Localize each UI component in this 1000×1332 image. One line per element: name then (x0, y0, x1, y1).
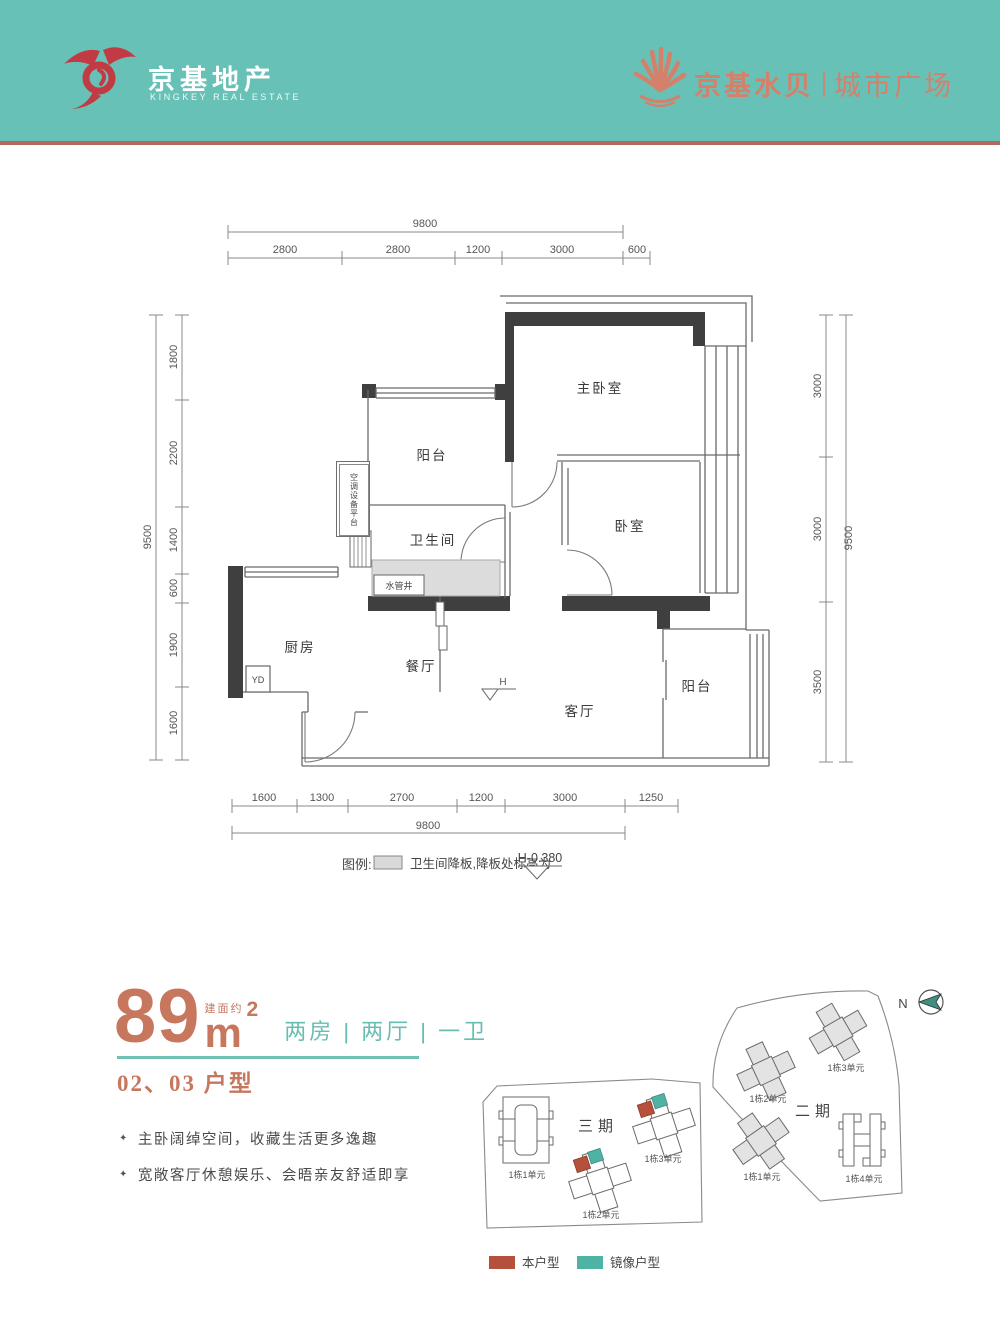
dim-label: 2800 (386, 244, 410, 256)
room-label-balcony-right: 阳台 (682, 679, 713, 694)
feature-text: 主卧阔绰空间，收藏生活更多逸趣 (138, 1128, 378, 1149)
dim-label: 1600 (252, 792, 276, 804)
room-label-dining: 餐厅 (406, 659, 437, 674)
dim-label: 1200 (466, 244, 490, 256)
floor-plan: 9800 2800 2800 1200 3000 600 1600 1300 2… (140, 200, 880, 900)
dim-label: 1600 (168, 711, 180, 735)
phase3-label: 三期 (578, 1118, 618, 1135)
area-unit-block: 建面约 m (205, 1000, 244, 1049)
dim-label: 1900 (168, 633, 180, 657)
project-subtitle: 城市广场 (834, 64, 954, 103)
dim-label: 2800 (273, 244, 297, 256)
feature-item: ✦ 宽敞客厅休憩娱乐、会晤亲友舒适即享 (119, 1164, 410, 1185)
building-label: 1栋2单元 (749, 1093, 786, 1104)
room-label-master: 主卧室 (577, 380, 624, 396)
dim-label: 9800 (413, 218, 437, 230)
yd-box: YD (246, 666, 270, 692)
dimension-lines (149, 225, 853, 840)
plan-legend: 图例: 卫生间降板,降板处标高为 H-0.380 (342, 851, 562, 879)
ac-platform-box: 空调设备平台 (336, 461, 370, 537)
dim-label: 1400 (168, 528, 180, 552)
building-label: 1栋4单元 (845, 1173, 882, 1184)
dim-label: 1200 (469, 792, 493, 804)
dim-label: 3000 (553, 792, 577, 804)
dim-label: 600 (168, 579, 180, 597)
project-name: 京基水贝 (694, 64, 814, 103)
dim-label: 9500 (142, 525, 154, 549)
legend-elevation-triangle-icon (525, 866, 549, 879)
dimension-labels: 9800 2800 2800 1200 3000 600 1600 1300 2… (142, 218, 855, 832)
compass-n-label: N (898, 996, 907, 1011)
phase2-plot: 二期 1栋3单元 1栋2单元 1栋1单元 1栋4单元 (713, 991, 902, 1201)
area-unit: m (205, 1017, 242, 1049)
dim-label: 1250 (639, 792, 663, 804)
teal-divider (117, 1056, 419, 1059)
p3-building-1 (499, 1097, 553, 1163)
dim-label: 3000 (812, 374, 824, 398)
room-label-bath: 卫生间 (410, 533, 457, 548)
kingkey-bird-logo-icon (56, 40, 142, 116)
ac-platform-label: 空调设备平台 (339, 464, 369, 536)
feature-item: ✦ 主卧阔绰空间，收藏生活更多逸趣 (119, 1128, 410, 1149)
building-label: 1栋1单元 (508, 1169, 545, 1180)
dim-label: 1300 (310, 792, 334, 804)
phase3-plot: 三期 1栋1单元 1栋2单元 1栋3单元 (483, 1079, 702, 1228)
room-label-living: 客厅 (565, 703, 596, 719)
brand-name-en: KINGKEY REAL ESTATE (150, 92, 301, 102)
building-label: 1栋3单元 (827, 1062, 864, 1073)
brochure-page: 京基地产 KINGKEY REAL ESTATE 京基水贝 城市广场 (0, 0, 1000, 1332)
yd-label: YD (252, 675, 265, 685)
pipe-shaft-label: 水管井 (385, 580, 412, 591)
unit-code: 02、03 户型 (117, 1064, 254, 1098)
project-title: 京基水贝 城市广场 (694, 64, 954, 103)
dim-label: 9500 (843, 526, 855, 550)
phase2-label: 二期 (795, 1103, 835, 1120)
building-label: 1栋3单元 (644, 1153, 681, 1164)
feature-text: 宽敞客厅休憩娱乐、会晤亲友舒适即享 (138, 1164, 410, 1185)
legend-title: 图例: (342, 857, 372, 872)
mirror-unit-swatch (577, 1256, 603, 1269)
star-bullet-icon: ✦ (119, 1133, 129, 1144)
project-title-divider (823, 71, 825, 97)
elevation-marker: H (482, 677, 516, 700)
building-label: 1栋2单元 (582, 1209, 619, 1220)
mirror-unit-label: 镜像户型 (610, 1255, 660, 1270)
dim-label: 9800 (416, 820, 440, 832)
dim-label: 3000 (550, 244, 574, 256)
room-label-kitchen: 厨房 (285, 640, 316, 655)
site-plan: 三期 1栋1单元 1栋2单元 1栋3单元 (455, 980, 1000, 1280)
legend-value: H-0.380 (518, 851, 563, 865)
dim-label: 2200 (168, 441, 180, 465)
legend-slab-swatch (374, 856, 402, 869)
area-number: 89 (114, 986, 201, 1048)
unit-legend: 本户型 镜像户型 (489, 1255, 660, 1270)
compass-icon: N (898, 990, 943, 1014)
dim-label: 600 (628, 244, 646, 256)
feature-list: ✦ 主卧阔绰空间，收藏生活更多逸趣 ✦ 宽敞客厅休憩娱乐、会晤亲友舒适即享 (119, 1128, 410, 1200)
dim-label: 3500 (812, 670, 824, 694)
self-unit-swatch (489, 1256, 515, 1269)
project-fan-logo-icon (628, 46, 692, 108)
dim-label: 3000 (812, 517, 824, 541)
area-block: 89 建面约 m 2 两房 | 两厅 | 一卫 (114, 986, 488, 1048)
dim-label: 1800 (168, 345, 180, 369)
area-superscript: 2 (247, 998, 259, 1022)
room-labels: 主卧室 阳台 卫生间 卧室 厨房 餐厅 客厅 阳台 (285, 380, 713, 719)
dim-label: 2700 (390, 792, 414, 804)
star-bullet-icon: ✦ (119, 1169, 129, 1180)
elevation-h-label: H (499, 677, 506, 688)
room-label-bedroom: 卧室 (615, 518, 646, 534)
room-label-balcony-top: 阳台 (417, 448, 448, 463)
self-unit-label: 本户型 (522, 1255, 560, 1270)
building-label: 1栋1单元 (743, 1171, 780, 1182)
